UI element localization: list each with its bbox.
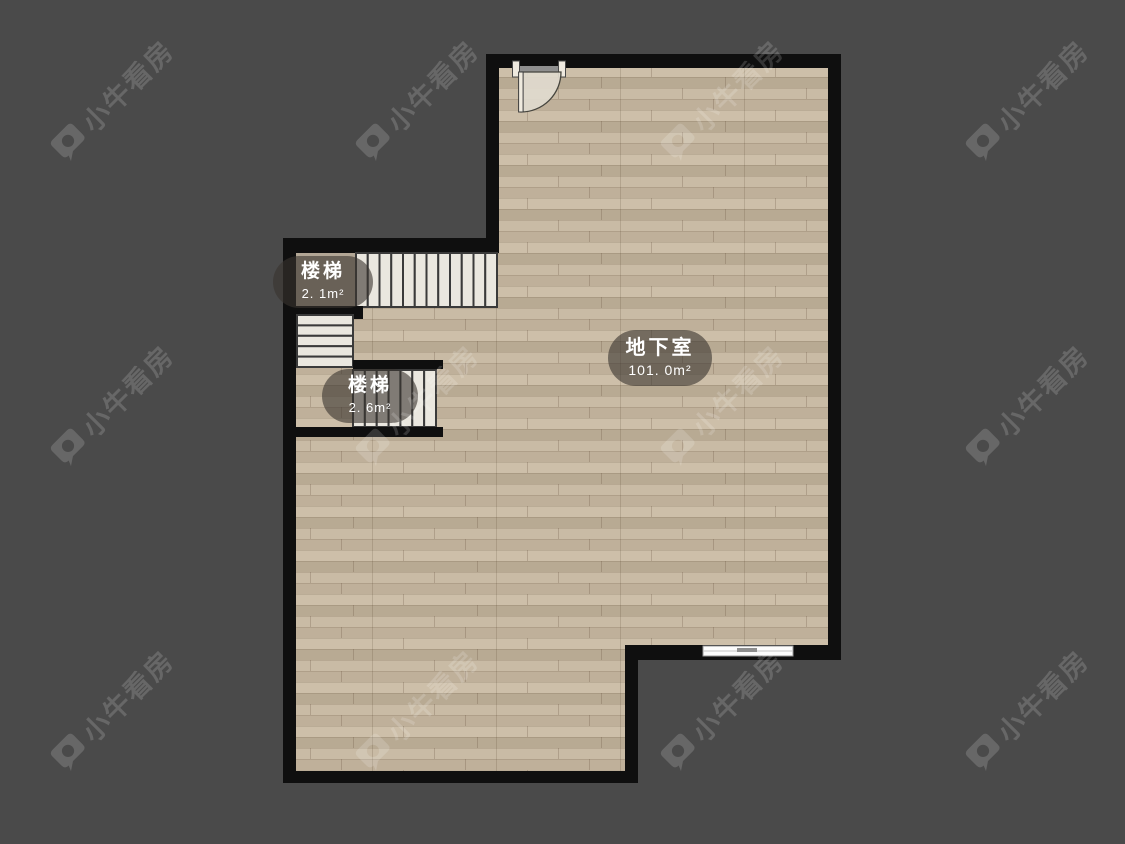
door-leaf [519,72,524,112]
stair-tread [297,315,353,325]
stair-tread [474,253,486,307]
wall-segment-b [353,360,443,369]
stair-tread [297,325,353,335]
room-name: 楼梯 [301,262,345,283]
stair-tread [380,253,392,307]
floorplan-svg [0,0,1125,844]
room-label-stair-upper: 楼梯 2. 1m² [273,256,373,308]
room-label-basement: 地下室 101. 0m² [608,330,712,386]
stair-tread [415,253,427,307]
stair-tread [424,370,436,427]
room-area: 2. 1m² [302,287,345,301]
stair-tread [403,253,415,307]
stair-tread [427,253,439,307]
wall-segment-c [296,427,443,437]
stair-tread [485,253,497,307]
stair-tread [438,253,450,307]
room-name: 地下室 [626,337,695,359]
stair-tread [297,336,353,346]
stair-upper-treads [356,253,497,307]
room-area: 101. 0m² [628,363,691,378]
room-name: 楼梯 [348,376,392,397]
room-area: 2. 6m² [349,401,392,415]
window-tick [737,648,757,652]
stair-tread [391,253,403,307]
stair-tread [297,357,353,367]
room-label-stair-lower: 楼梯 2. 6m² [322,369,418,423]
stair-run-treads [297,315,353,367]
stair-tread [462,253,474,307]
stair-tread [450,253,462,307]
window [703,646,793,656]
stair-tread [297,346,353,356]
floorplan-screenshot: 楼梯 2. 1m² 楼梯 2. 6m² 地下室 101. 0m² 小牛看房小牛看… [0,0,1125,844]
